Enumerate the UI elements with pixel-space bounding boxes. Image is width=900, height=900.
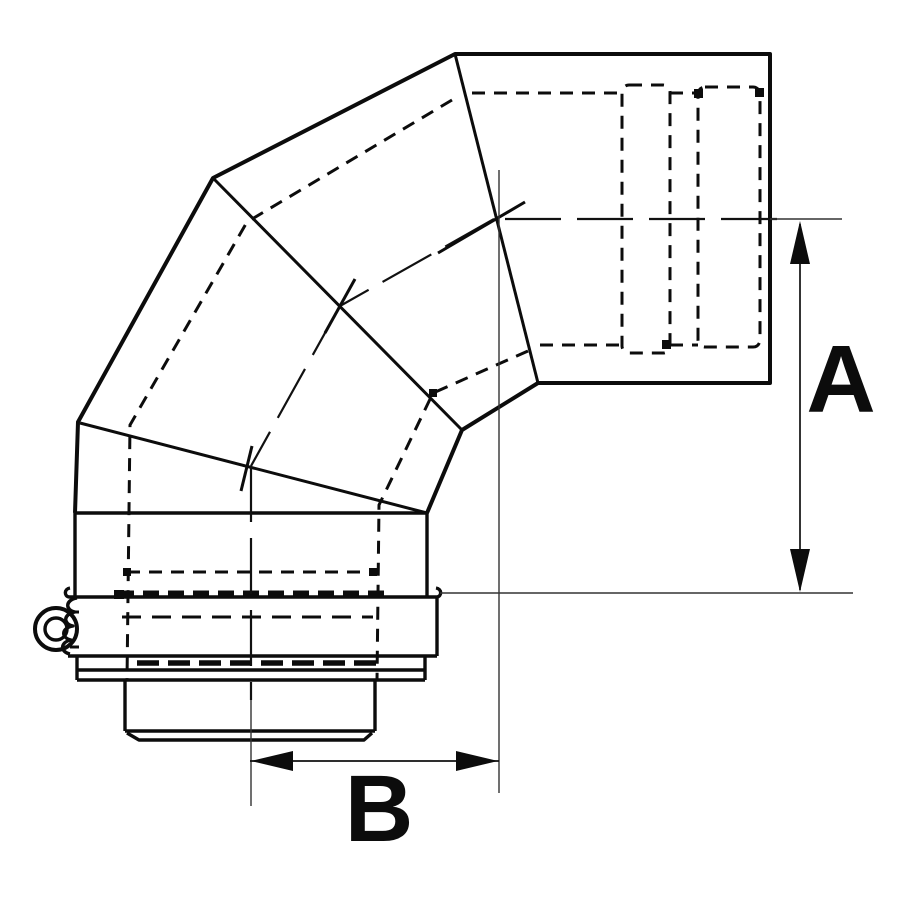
clamp-ring-outer xyxy=(35,608,77,650)
dash-tick xyxy=(123,568,131,576)
dimension-a-arrow-down xyxy=(790,549,810,592)
bend-tick-upper xyxy=(438,202,525,253)
dimension-b-arrow-right xyxy=(456,751,498,771)
technical-drawing-canvas: A B xyxy=(0,0,900,900)
dimension-b: B xyxy=(250,751,499,862)
dimension-a: A xyxy=(790,221,876,592)
dimension-b-arrow-left xyxy=(251,751,293,771)
elbow-body xyxy=(75,54,770,597)
collar-and-clamp xyxy=(35,568,441,740)
dimension-a-label: A xyxy=(806,326,875,433)
elbow-technical-drawing: A B xyxy=(0,0,900,900)
seam-lower xyxy=(80,423,427,513)
dash-tick xyxy=(694,89,703,98)
dimension-b-label: B xyxy=(345,756,414,862)
spigot-bottom-edge xyxy=(127,733,372,740)
dash-tick xyxy=(369,568,377,576)
outer-contour xyxy=(75,54,770,513)
dash-tick xyxy=(755,88,764,97)
socket-ring-2 xyxy=(698,87,760,347)
bend-tick-middle xyxy=(325,279,355,333)
dimension-a-arrow-up xyxy=(790,221,810,264)
seam-middle xyxy=(213,178,462,430)
dash-tick xyxy=(429,389,437,397)
liner-right-wall xyxy=(377,351,528,681)
dash-tick xyxy=(662,340,671,349)
